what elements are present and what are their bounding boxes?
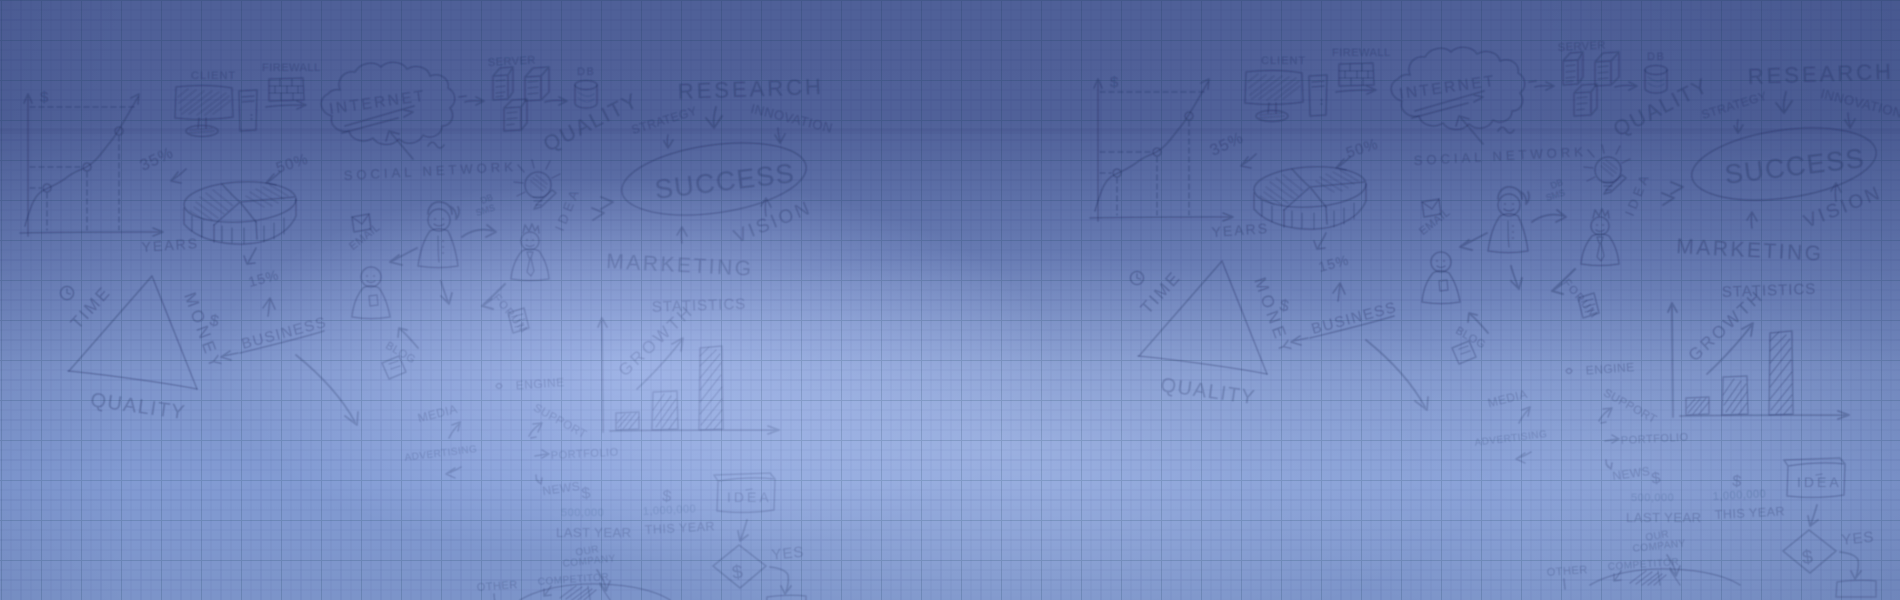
svg-text:YES: YES	[771, 544, 806, 564]
svg-text:$: $	[40, 89, 49, 106]
svg-text:IDEA: IDEA	[727, 489, 772, 505]
svg-text:$: $	[662, 488, 672, 506]
svg-text:RESEARCH: RESEARCH	[677, 74, 824, 104]
svg-text:500,000: 500,000	[561, 507, 604, 519]
svg-text:CLIENT: CLIENT	[191, 70, 236, 82]
svg-text:DB: DB	[577, 66, 595, 78]
svg-text:FIREWALL: FIREWALL	[262, 62, 321, 74]
svg-text:LAST YEAR: LAST YEAR	[556, 525, 632, 540]
svg-text:$: $	[581, 485, 592, 503]
svg-text:STATISTICS: STATISTICS	[652, 296, 747, 316]
